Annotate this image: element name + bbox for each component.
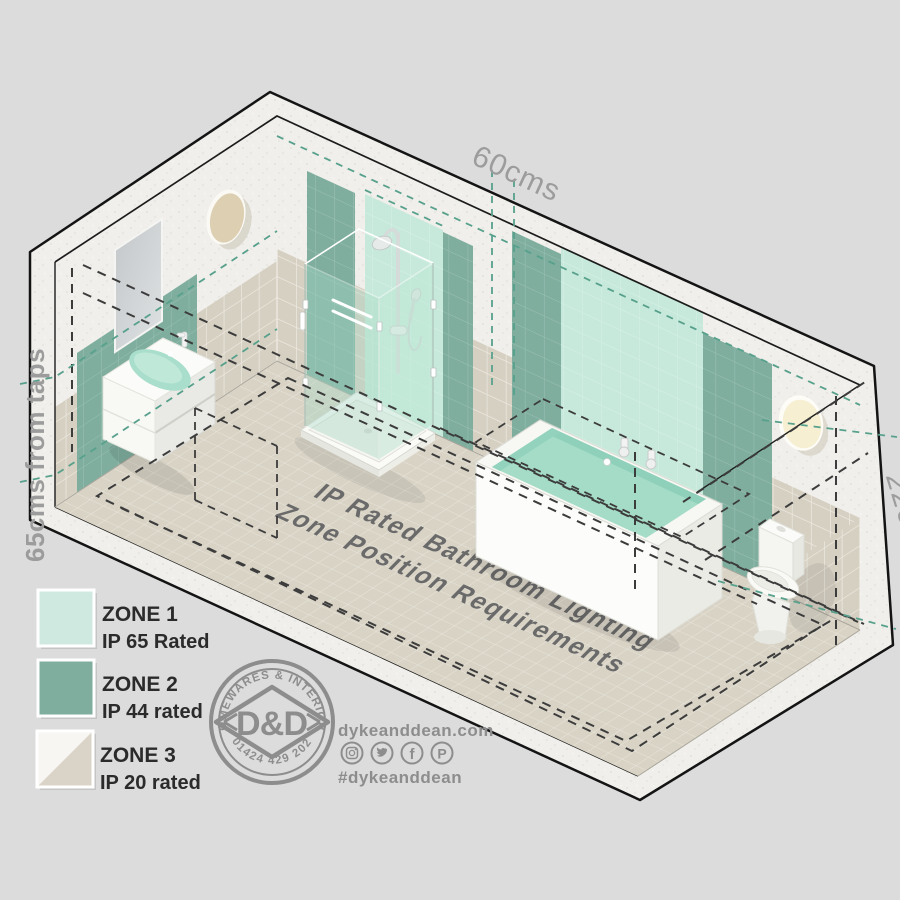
zone2-panel-right-of-shower [443, 232, 473, 451]
logo-monogram: D&D [236, 705, 308, 743]
zone3-label: ZONE 3 [100, 744, 176, 767]
svg-text:P: P [437, 746, 446, 762]
hashtag-label: #dykeanddean [338, 768, 462, 787]
zone2-label: ZONE 2 [102, 673, 178, 696]
website-link[interactable]: dykeanddean.com [338, 721, 494, 740]
shower-door-handle [300, 312, 305, 330]
isometric-bathroom-diagram: IP Rated Bathroom Lighting Zone Position… [0, 0, 900, 900]
zone1-swatch [38, 590, 94, 646]
zone1-label: ZONE 1 [102, 603, 178, 626]
zone2-swatch [38, 660, 94, 716]
bathroom-lighting-zones-infographic: IP Rated Bathroom Lighting Zone Position… [0, 0, 900, 900]
zone1-rating: IP 65 Rated [102, 631, 209, 653]
dimension-left: 65cms from taps [20, 348, 50, 562]
zone2-rating: IP 44 rated [102, 701, 203, 723]
dimension-left-label: 65cms from taps [20, 348, 50, 562]
zone3-rating: IP 20 rated [100, 772, 201, 794]
